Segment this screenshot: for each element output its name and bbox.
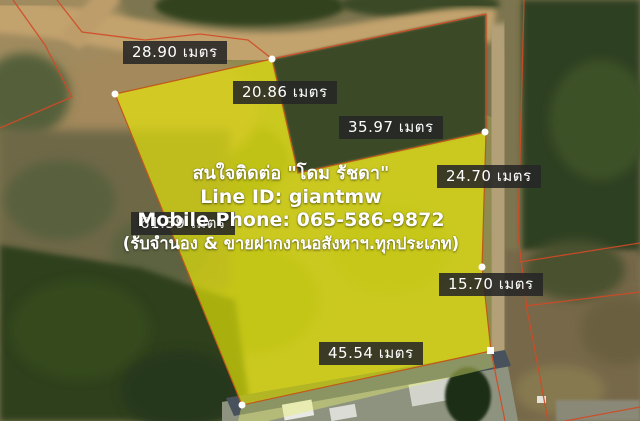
contact-phone: Mobile Phone: 065-586-9872 <box>118 209 464 232</box>
measurement-label-top-edge: 28.90 เมตร <box>123 41 227 64</box>
measurement-label-right-lower-edge: 15.70 เมตร <box>439 273 543 296</box>
contact-headline: สนใจติดต่อ "โดม รัชดา" <box>118 162 464 186</box>
contact-info-overlay: สนใจติดต่อ "โดม รัชดา" Line ID: giantmw … <box>118 162 464 255</box>
measurement-label-upper-right-edge: 20.86 เมตร <box>233 81 337 104</box>
measurement-label-bottom-edge: 45.54 เมตร <box>319 342 423 365</box>
contact-services: (รับจำนอง & ขายฝากงานอสังหาฯ.ทุกประเภท) <box>118 232 464 255</box>
contact-line-id: Line ID: giantmw <box>118 186 464 209</box>
aerial-map-image: 28.90 เมตร 20.86 เมตร 35.97 เมตร 24.70 เ… <box>0 0 640 421</box>
measurement-label-wedge-top-edge: 35.97 เมตร <box>339 116 443 139</box>
